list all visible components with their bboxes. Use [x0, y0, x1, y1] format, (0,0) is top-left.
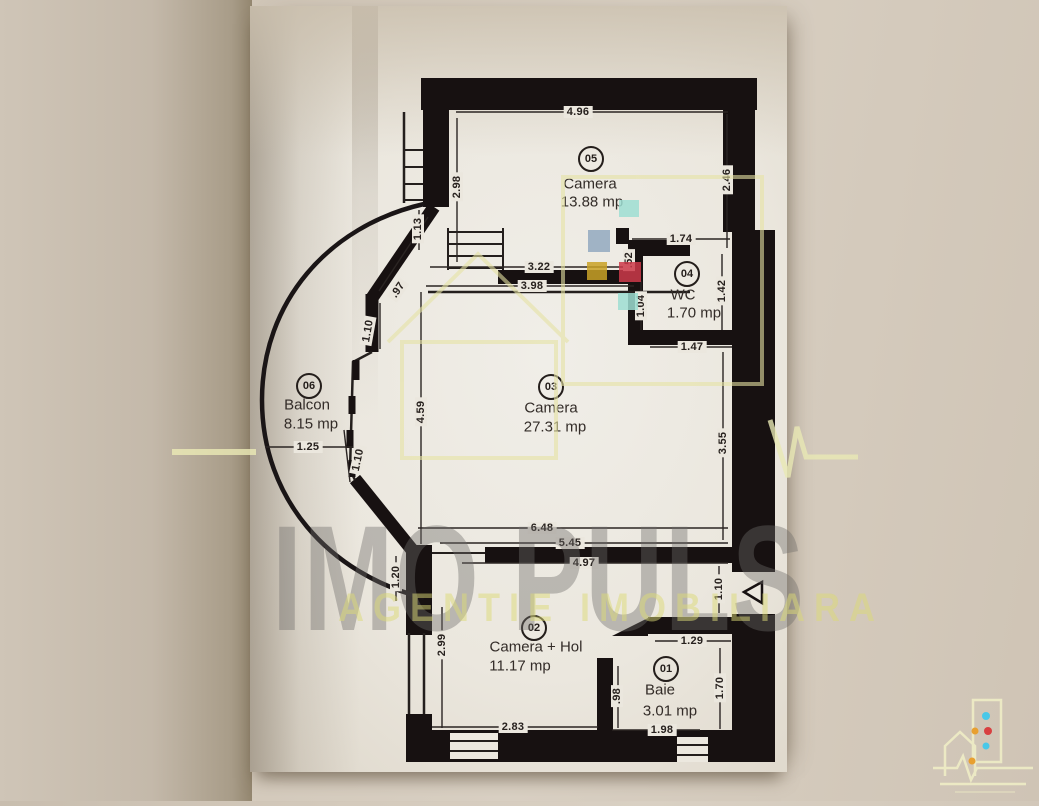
photo-background-left	[0, 0, 252, 801]
wall-stub	[616, 228, 629, 244]
corner-logo-dot-red	[984, 727, 992, 735]
dimension-label: 1.29	[678, 635, 707, 647]
corner-logo-dot-orange2	[969, 758, 976, 765]
wall-segment	[732, 230, 775, 572]
room-number-badge: 04	[674, 261, 700, 287]
dimension-label: 1.10	[713, 575, 725, 604]
room-number-badge: 05	[578, 146, 604, 172]
room-number-badge: 03	[538, 374, 564, 400]
dimension-label: 1.13	[412, 215, 424, 244]
dimension-label: 3.22	[525, 261, 554, 273]
room-name: Balcon	[284, 397, 330, 414]
dimension-label: .52	[623, 249, 635, 271]
dimension-label: 2.98	[451, 173, 463, 202]
room-area: 13.88 mp	[561, 194, 624, 211]
room-number-badge: 06	[296, 373, 322, 399]
dimension-label: 3.55	[717, 429, 729, 458]
room-area: 1.70 mp	[667, 305, 721, 322]
room-area: 27.31 mp	[524, 419, 587, 436]
dimension-label: 1.42	[716, 277, 728, 306]
dimension-label: 1.20	[390, 563, 402, 592]
room-number-badge: 01	[653, 656, 679, 682]
dimension-label: 4.59	[415, 398, 427, 427]
room-name: Camera	[524, 400, 577, 417]
corner-logo-dot-cyan	[982, 712, 990, 720]
dimension-label: 1.74	[667, 233, 696, 245]
room-name: Camera	[563, 176, 616, 193]
room-area: 11.17 mp	[489, 658, 550, 675]
wall-segment	[406, 545, 432, 635]
corner-logo-dot-orange	[972, 728, 979, 735]
room-name: Camera + Hol	[490, 639, 583, 656]
wall-segment-baie-top	[648, 617, 735, 634]
dimension-label: 1.70	[714, 674, 726, 703]
dimension-label: 1.04	[635, 292, 647, 321]
dimension-label: 2.46	[721, 166, 733, 195]
dimension-label: 4.96	[564, 106, 593, 118]
wall-segment	[421, 78, 455, 110]
dimension-label: 3.98	[518, 280, 547, 292]
room-name: WC	[671, 287, 696, 304]
dimension-label: 2.99	[436, 631, 448, 660]
dimension-label: .98	[611, 685, 623, 707]
corner-logo-house	[945, 732, 975, 776]
dimension-label: 1.47	[678, 341, 707, 353]
dimension-label: 5.45	[556, 537, 585, 549]
window-gap	[450, 733, 498, 759]
wall-segment	[455, 78, 757, 110]
window-gap	[677, 737, 708, 762]
room-number-badge: 02	[521, 615, 547, 641]
corner-logo-pulse	[933, 756, 1033, 780]
corner-logo-dot-cyan2	[983, 743, 990, 750]
room-name: Baie	[645, 682, 675, 699]
room-area: 3.01 mp	[643, 703, 697, 720]
dimension-label: 6.48	[528, 522, 557, 534]
corner-logo-building	[973, 700, 1001, 762]
wall-segment-divider-03-02	[485, 547, 735, 563]
room-area: 8.15 mp	[284, 416, 338, 433]
dimension-label: 1.98	[648, 724, 677, 736]
dimension-label: 4.97	[570, 557, 599, 569]
dimension-label: 1.25	[294, 441, 323, 453]
dimension-label: 2.83	[499, 721, 528, 733]
wall-segment	[423, 110, 449, 207]
